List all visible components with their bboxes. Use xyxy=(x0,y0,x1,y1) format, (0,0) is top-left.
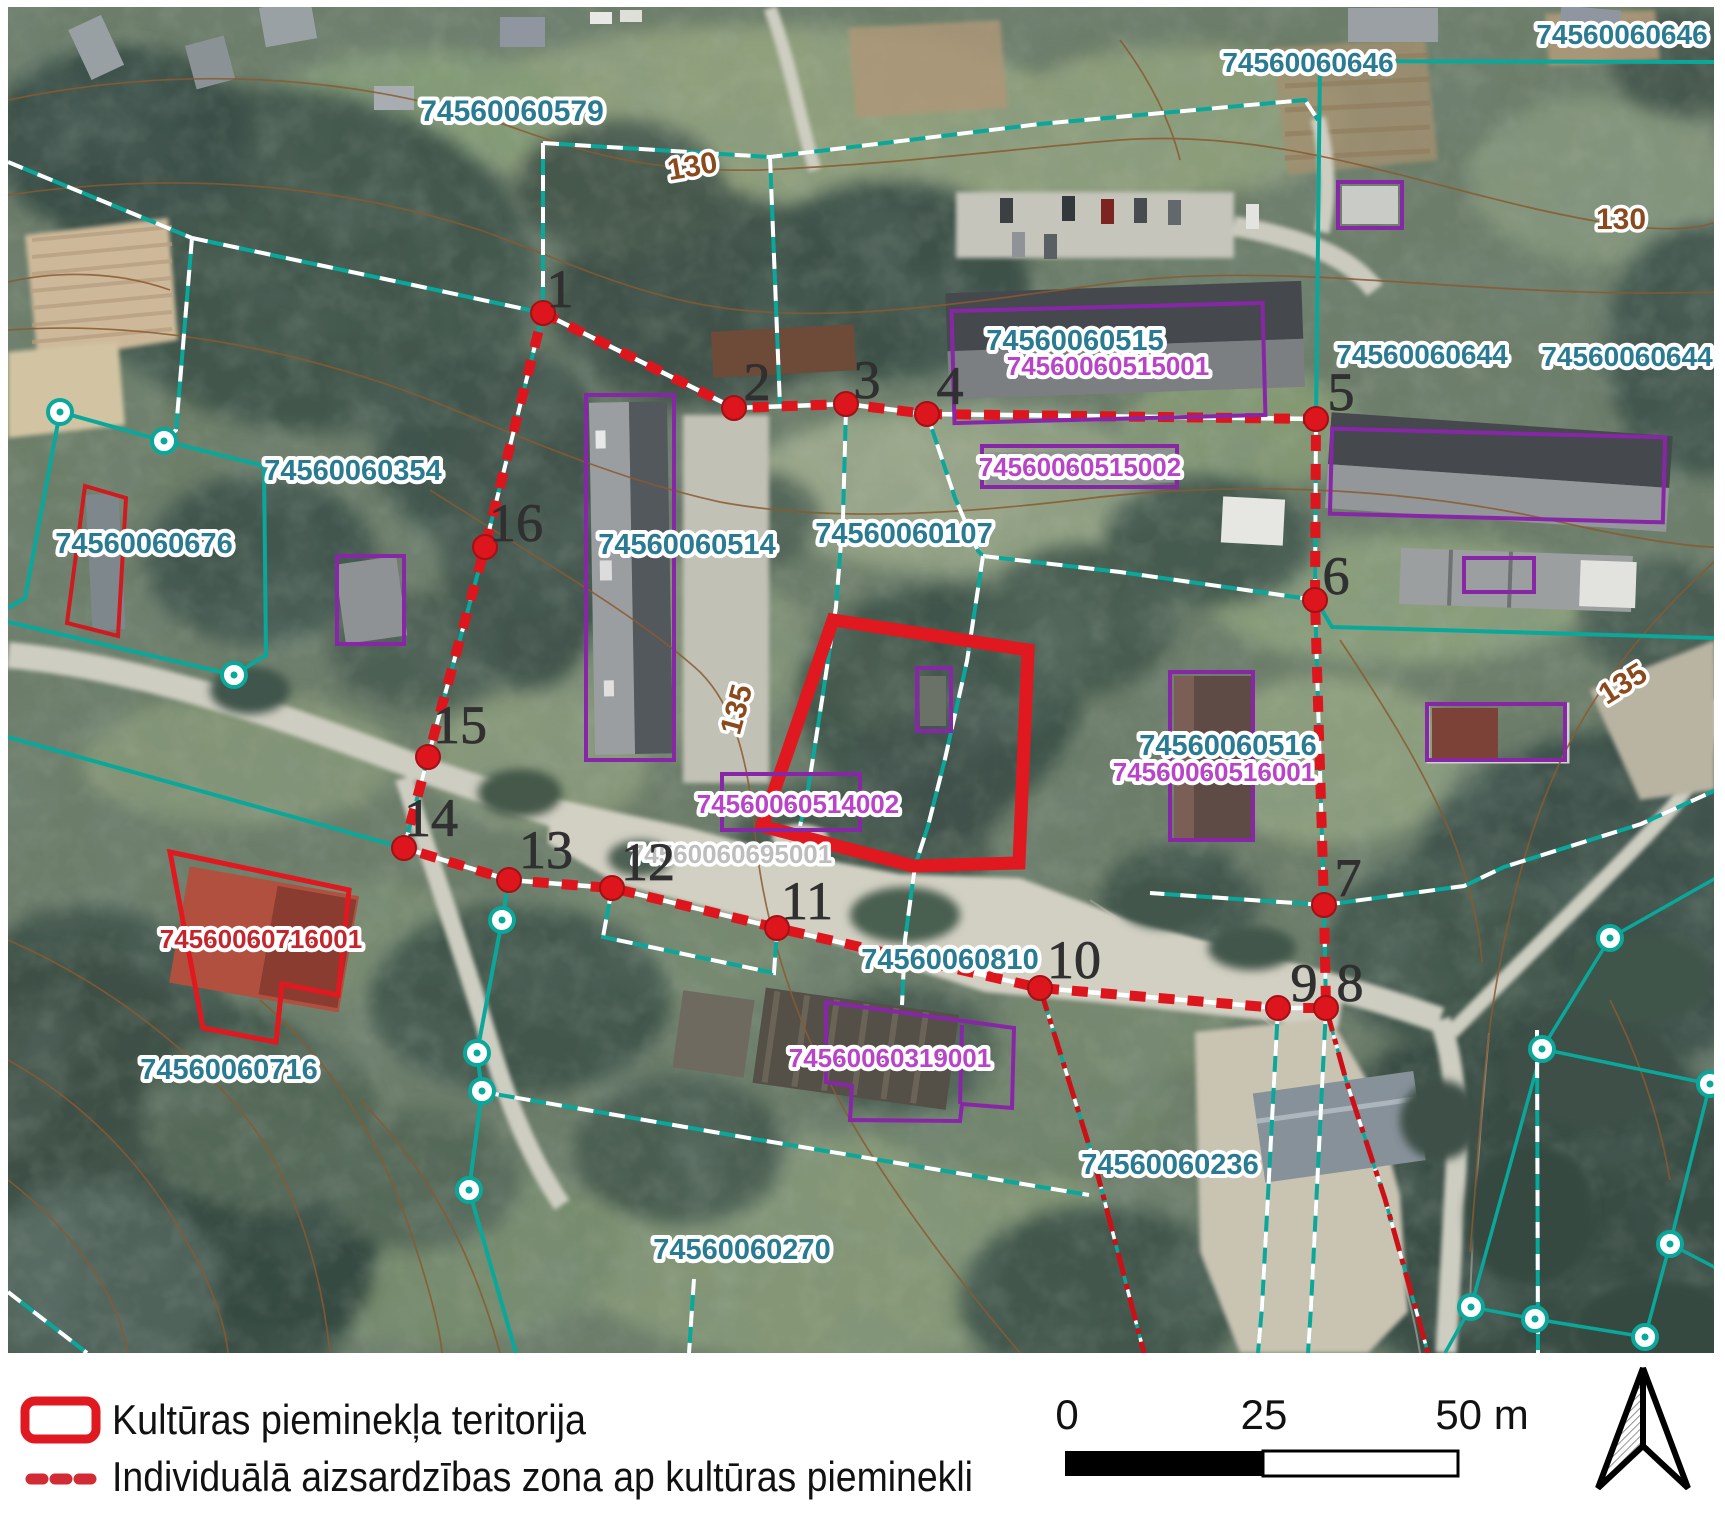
svg-text:74560060716001: 74560060716001 xyxy=(160,924,362,954)
svg-text:130: 130 xyxy=(1596,203,1646,236)
svg-text:10: 10 xyxy=(1047,930,1101,990)
svg-text:3: 3 xyxy=(854,350,881,410)
svg-text:11: 11 xyxy=(781,871,833,931)
svg-text:16: 16 xyxy=(489,493,543,553)
svg-text:74560060579: 74560060579 xyxy=(420,95,604,128)
svg-text:15: 15 xyxy=(433,695,487,755)
svg-text:74560060716: 74560060716 xyxy=(140,1054,317,1086)
svg-text:8: 8 xyxy=(1337,953,1364,1013)
svg-text:50 m: 50 m xyxy=(1435,1391,1528,1438)
svg-text:74560060676: 74560060676 xyxy=(55,528,232,560)
svg-text:Kultūras pieminekļa teritorija: Kultūras pieminekļa teritorija xyxy=(112,1396,587,1443)
svg-text:74560060514: 74560060514 xyxy=(598,529,775,561)
svg-text:74560060354: 74560060354 xyxy=(264,455,441,487)
svg-text:7: 7 xyxy=(1335,848,1362,908)
svg-text:74560060644: 74560060644 xyxy=(1541,341,1713,372)
svg-text:74560060236: 74560060236 xyxy=(1081,1149,1258,1181)
svg-text:25: 25 xyxy=(1241,1391,1288,1438)
svg-text:1: 1 xyxy=(547,259,574,319)
svg-text:5: 5 xyxy=(1328,362,1355,422)
svg-text:74560060514002: 74560060514002 xyxy=(697,789,899,819)
svg-text:Individuālā aizsardzības zona: Individuālā aizsardzības zona ap kultūra… xyxy=(112,1453,973,1500)
svg-text:74560060107: 74560060107 xyxy=(815,518,992,550)
svg-text:0: 0 xyxy=(1055,1391,1078,1438)
svg-text:2: 2 xyxy=(744,352,771,412)
svg-text:74560060515002: 74560060515002 xyxy=(979,452,1181,482)
svg-text:9: 9 xyxy=(1291,953,1318,1013)
svg-text:74560060646: 74560060646 xyxy=(1222,47,1393,78)
svg-text:74560060516001: 74560060516001 xyxy=(1113,757,1315,787)
svg-text:12: 12 xyxy=(621,832,675,892)
svg-text:6: 6 xyxy=(1323,546,1350,606)
svg-text:74560060810: 74560060810 xyxy=(861,944,1038,976)
svg-text:13: 13 xyxy=(519,820,573,880)
svg-text:74560060646: 74560060646 xyxy=(1536,19,1707,50)
svg-text:74560060515001: 74560060515001 xyxy=(1007,351,1209,381)
svg-text:74560060270: 74560060270 xyxy=(653,1234,830,1266)
svg-text:4: 4 xyxy=(937,356,964,416)
svg-text:74560060319001: 74560060319001 xyxy=(789,1043,991,1073)
svg-text:74560060644: 74560060644 xyxy=(1336,339,1508,370)
svg-text:14: 14 xyxy=(404,788,458,848)
